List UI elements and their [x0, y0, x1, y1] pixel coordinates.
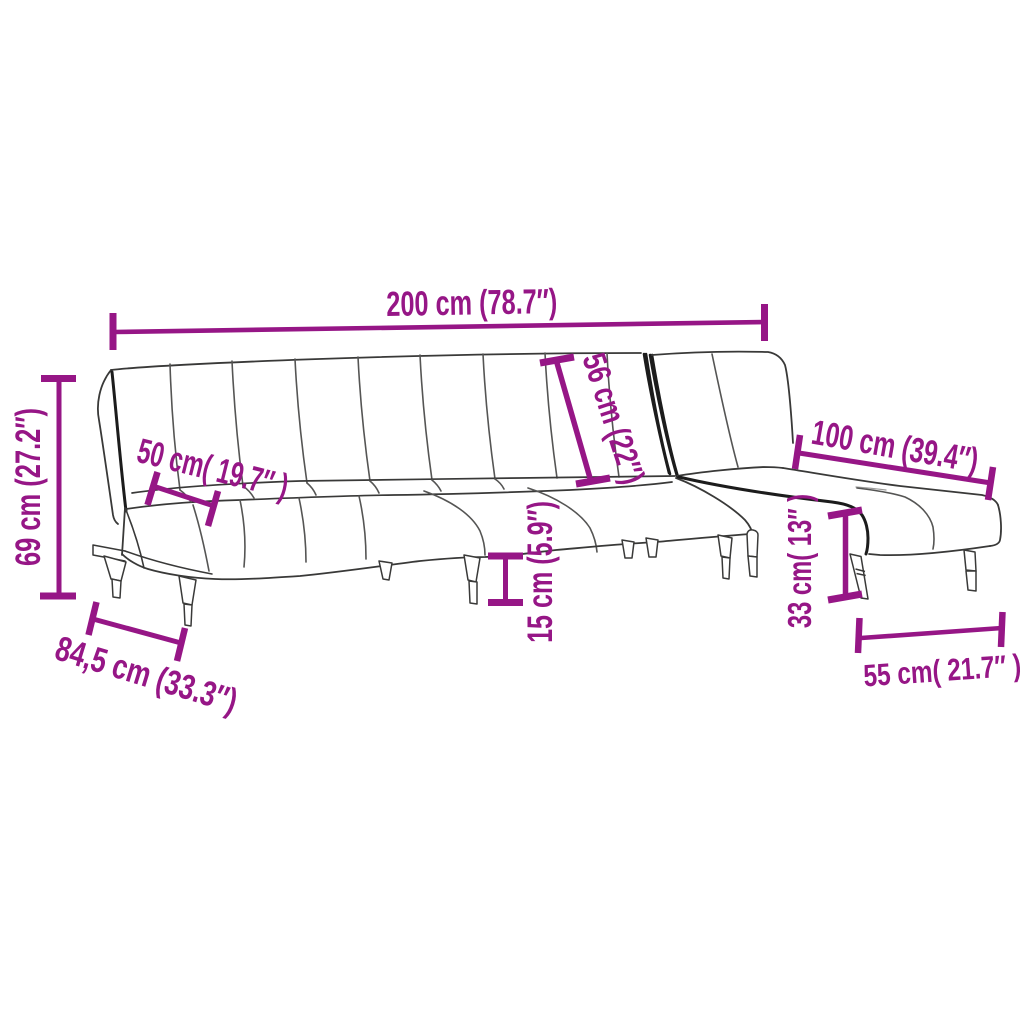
svg-text:55 cm( 21.7″ ): 55 cm( 21.7″ ) — [862, 648, 1022, 693]
svg-text:69 cm (27.2″): 69 cm (27.2″) — [9, 408, 48, 566]
svg-text:200 cm (78.7″): 200 cm (78.7″) — [386, 282, 558, 324]
svg-text:33 cm( 13″ ): 33 cm( 13″ ) — [782, 494, 819, 628]
svg-text:15 cm (5.9″): 15 cm (5.9″) — [521, 501, 560, 643]
svg-text:84,5 cm (33.3″): 84,5 cm (33.3″) — [51, 628, 242, 721]
svg-text:50 cm( 19.7″ ): 50 cm( 19.7″ ) — [133, 432, 292, 507]
